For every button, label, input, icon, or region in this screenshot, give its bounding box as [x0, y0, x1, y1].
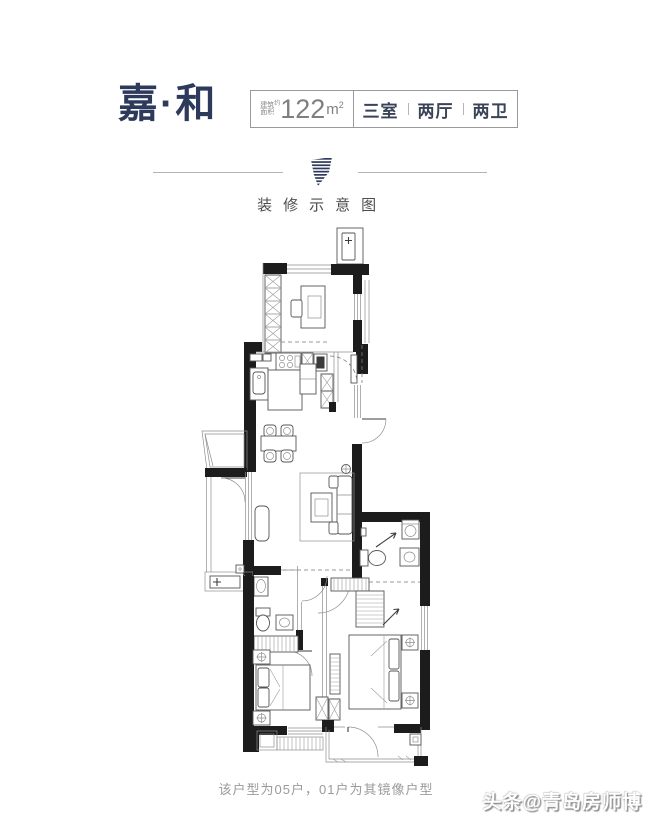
- west-balcony: [202, 412, 256, 591]
- living-room: [255, 465, 354, 542]
- toutiao-watermark: 头条@青岛房师博: [482, 787, 642, 814]
- south-balconies: [243, 720, 428, 766]
- top-room: [263, 263, 369, 353]
- kitchen: [244, 342, 353, 412]
- utility-shaft: [331, 228, 369, 275]
- bedroom-left: [253, 650, 328, 725]
- mirror-note-caption: 该户型为05户，01户为其镜像户型: [219, 779, 434, 798]
- floorplan-page: 嘉·和 建筑 面积 约 122 m2 三室 两厅 两卫: [0, 0, 652, 820]
- floor-plan-drawing: [0, 0, 652, 820]
- dining-area: [261, 425, 296, 462]
- entry: [330, 344, 386, 584]
